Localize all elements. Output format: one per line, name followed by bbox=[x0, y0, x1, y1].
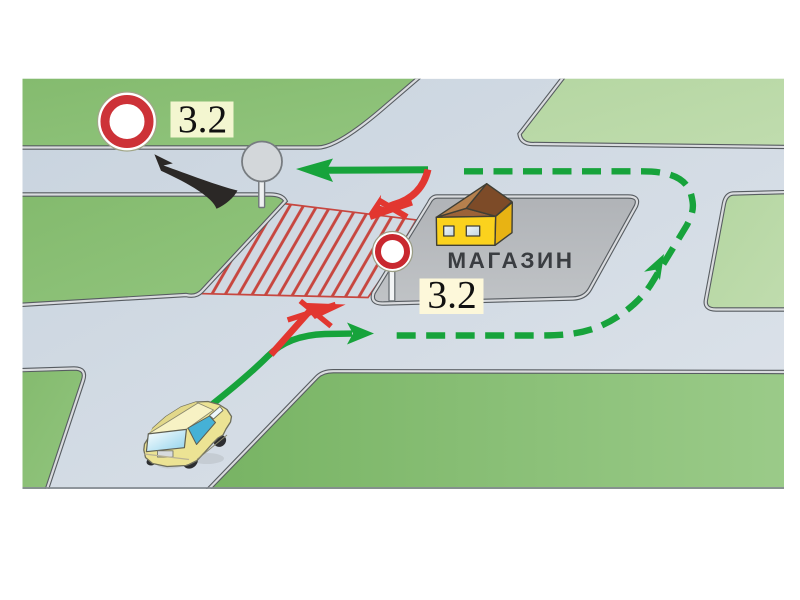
svg-text:3.2: 3.2 bbox=[427, 273, 476, 317]
svg-text:3.2: 3.2 bbox=[178, 97, 227, 141]
svg-text:МАГАЗИН: МАГАЗИН bbox=[447, 248, 574, 273]
